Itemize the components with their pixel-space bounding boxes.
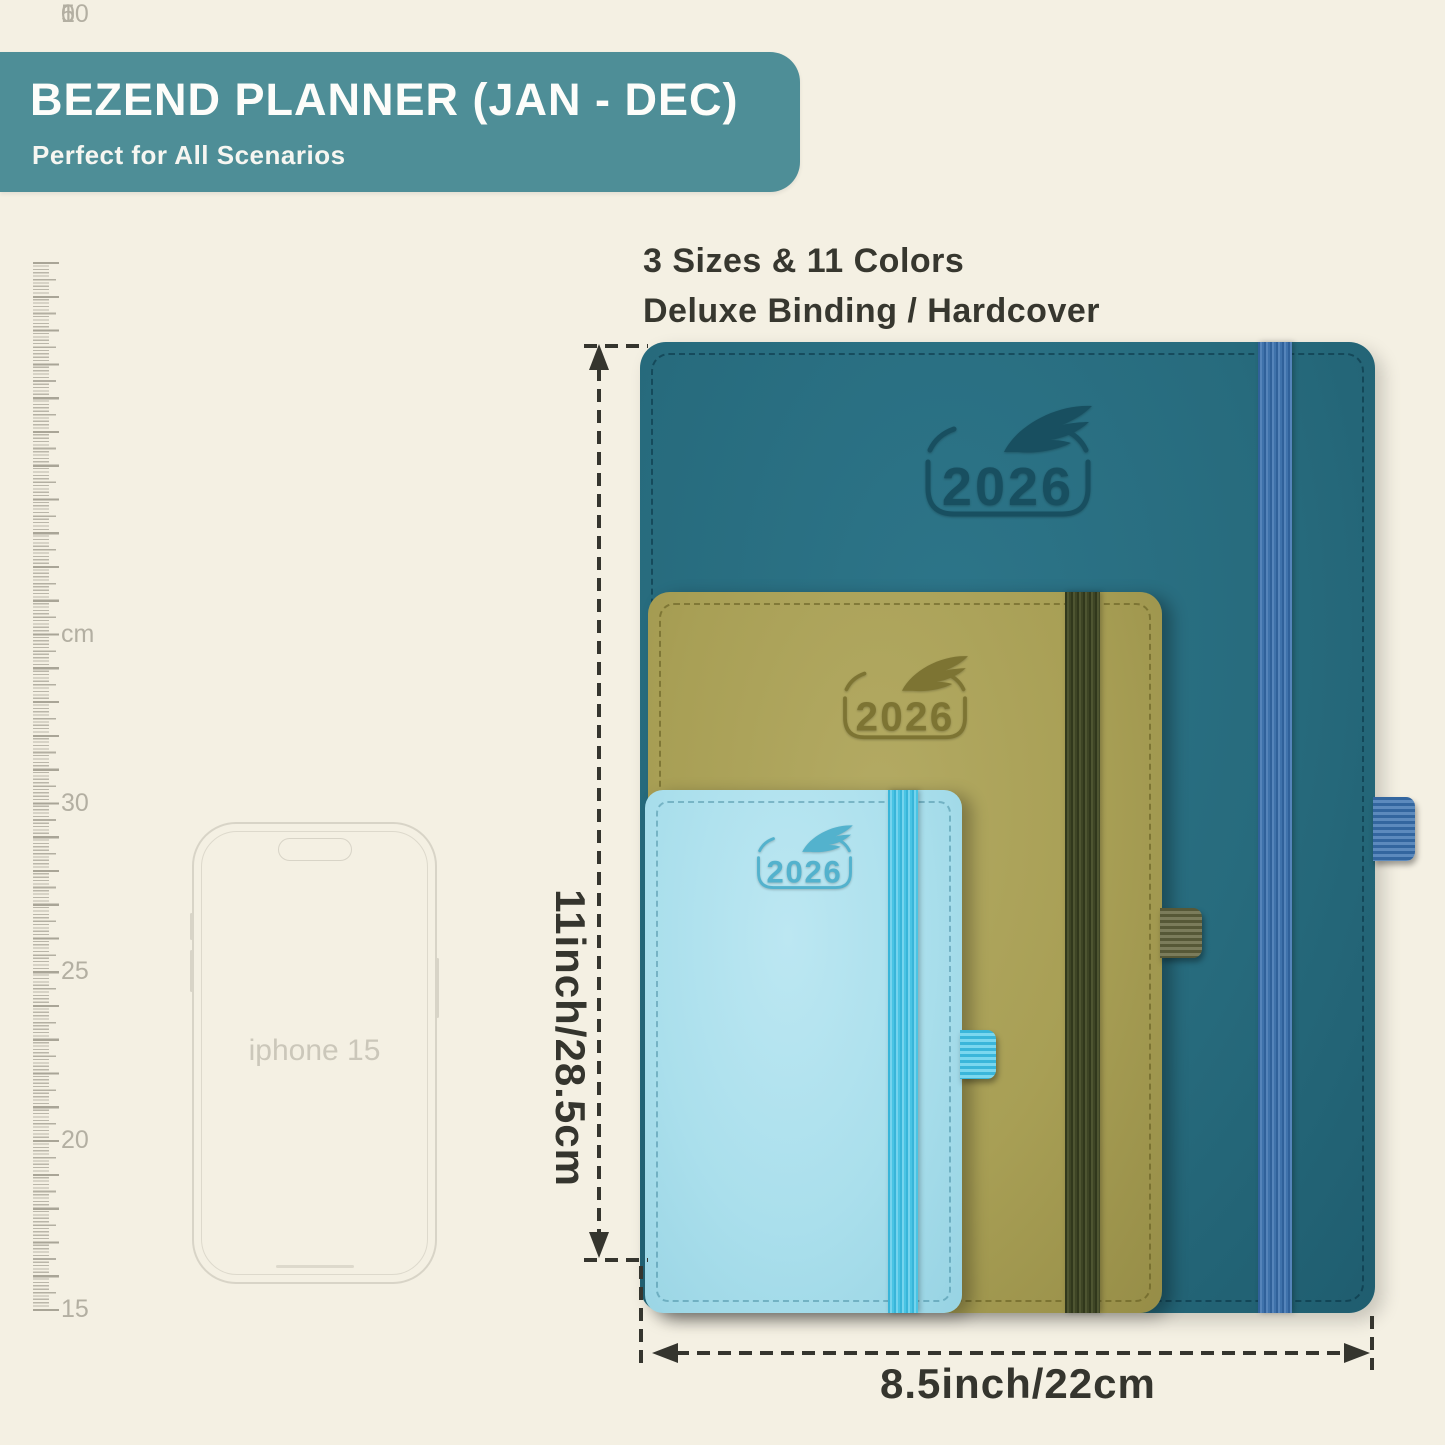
width-dim-right-extension — [1370, 1316, 1374, 1370]
width-dim-arrow-left — [652, 1343, 678, 1363]
planner-medium-pen-loop — [1160, 908, 1202, 958]
iphone-home-indicator — [276, 1265, 354, 1268]
planner-small-elastic-band — [888, 790, 918, 1313]
ruler-cm-ticks — [33, 262, 59, 1311]
width-dim-left-extension — [639, 1266, 643, 1368]
planner-medium-2026-emblem — [830, 647, 980, 757]
iphone-mute-switch — [190, 913, 193, 940]
height-dim-label: 11inch/28.5cm — [546, 828, 594, 1248]
iphone-label: iphone 15 — [194, 1034, 435, 1068]
page-subtitle: Perfect for All Scenarios — [32, 140, 346, 171]
ruler-mark-30: 30 — [61, 789, 107, 818]
planner-large-2026-emblem — [908, 402, 1108, 532]
planner-large-elastic-band — [1258, 342, 1292, 1313]
ruler-unit-label: cm — [61, 620, 107, 649]
feature-line-binding: Deluxe Binding / Hardcover — [643, 286, 1100, 336]
width-dim-arrow-right — [1344, 1343, 1370, 1363]
width-dim-line — [676, 1351, 1348, 1355]
width-dim-label: 8.5inch/22cm — [880, 1360, 1156, 1408]
ruler-mark-0: 0 — [61, 0, 107, 29]
planner-large-pen-loop — [1373, 797, 1415, 861]
product-image: 2026 BEZEND PLANNER (JAN - DEC) Perfect … — [0, 0, 1445, 1445]
ruler-mark-15: 15 — [61, 1295, 107, 1324]
page-title: BEZEND PLANNER (JAN - DEC) — [30, 74, 739, 126]
iphone-power-button — [436, 958, 439, 1018]
planner-small-2026-emblem — [747, 818, 862, 903]
header-banner: BEZEND PLANNER (JAN - DEC) Perfect for A… — [0, 52, 800, 192]
planner-small-pen-loop — [960, 1030, 996, 1079]
feature-line-sizes: 3 Sizes & 11 Colors — [643, 236, 1100, 286]
height-dim-line — [597, 368, 601, 1240]
planner-medium-elastic-band — [1065, 592, 1100, 1313]
ruler-mark-25: 25 — [61, 957, 107, 986]
ruler-mark-20: 20 — [61, 1126, 107, 1155]
iphone-dynamic-island — [278, 838, 352, 861]
planner-small — [645, 790, 962, 1313]
height-dim-bottom-stub — [584, 1258, 648, 1262]
iphone-volume-button — [190, 950, 193, 992]
height-dim-arrow-up — [589, 344, 609, 370]
iphone-outline: iphone 15 — [192, 822, 437, 1284]
feature-text: 3 Sizes & 11 Colors Deluxe Binding / Har… — [643, 236, 1100, 336]
